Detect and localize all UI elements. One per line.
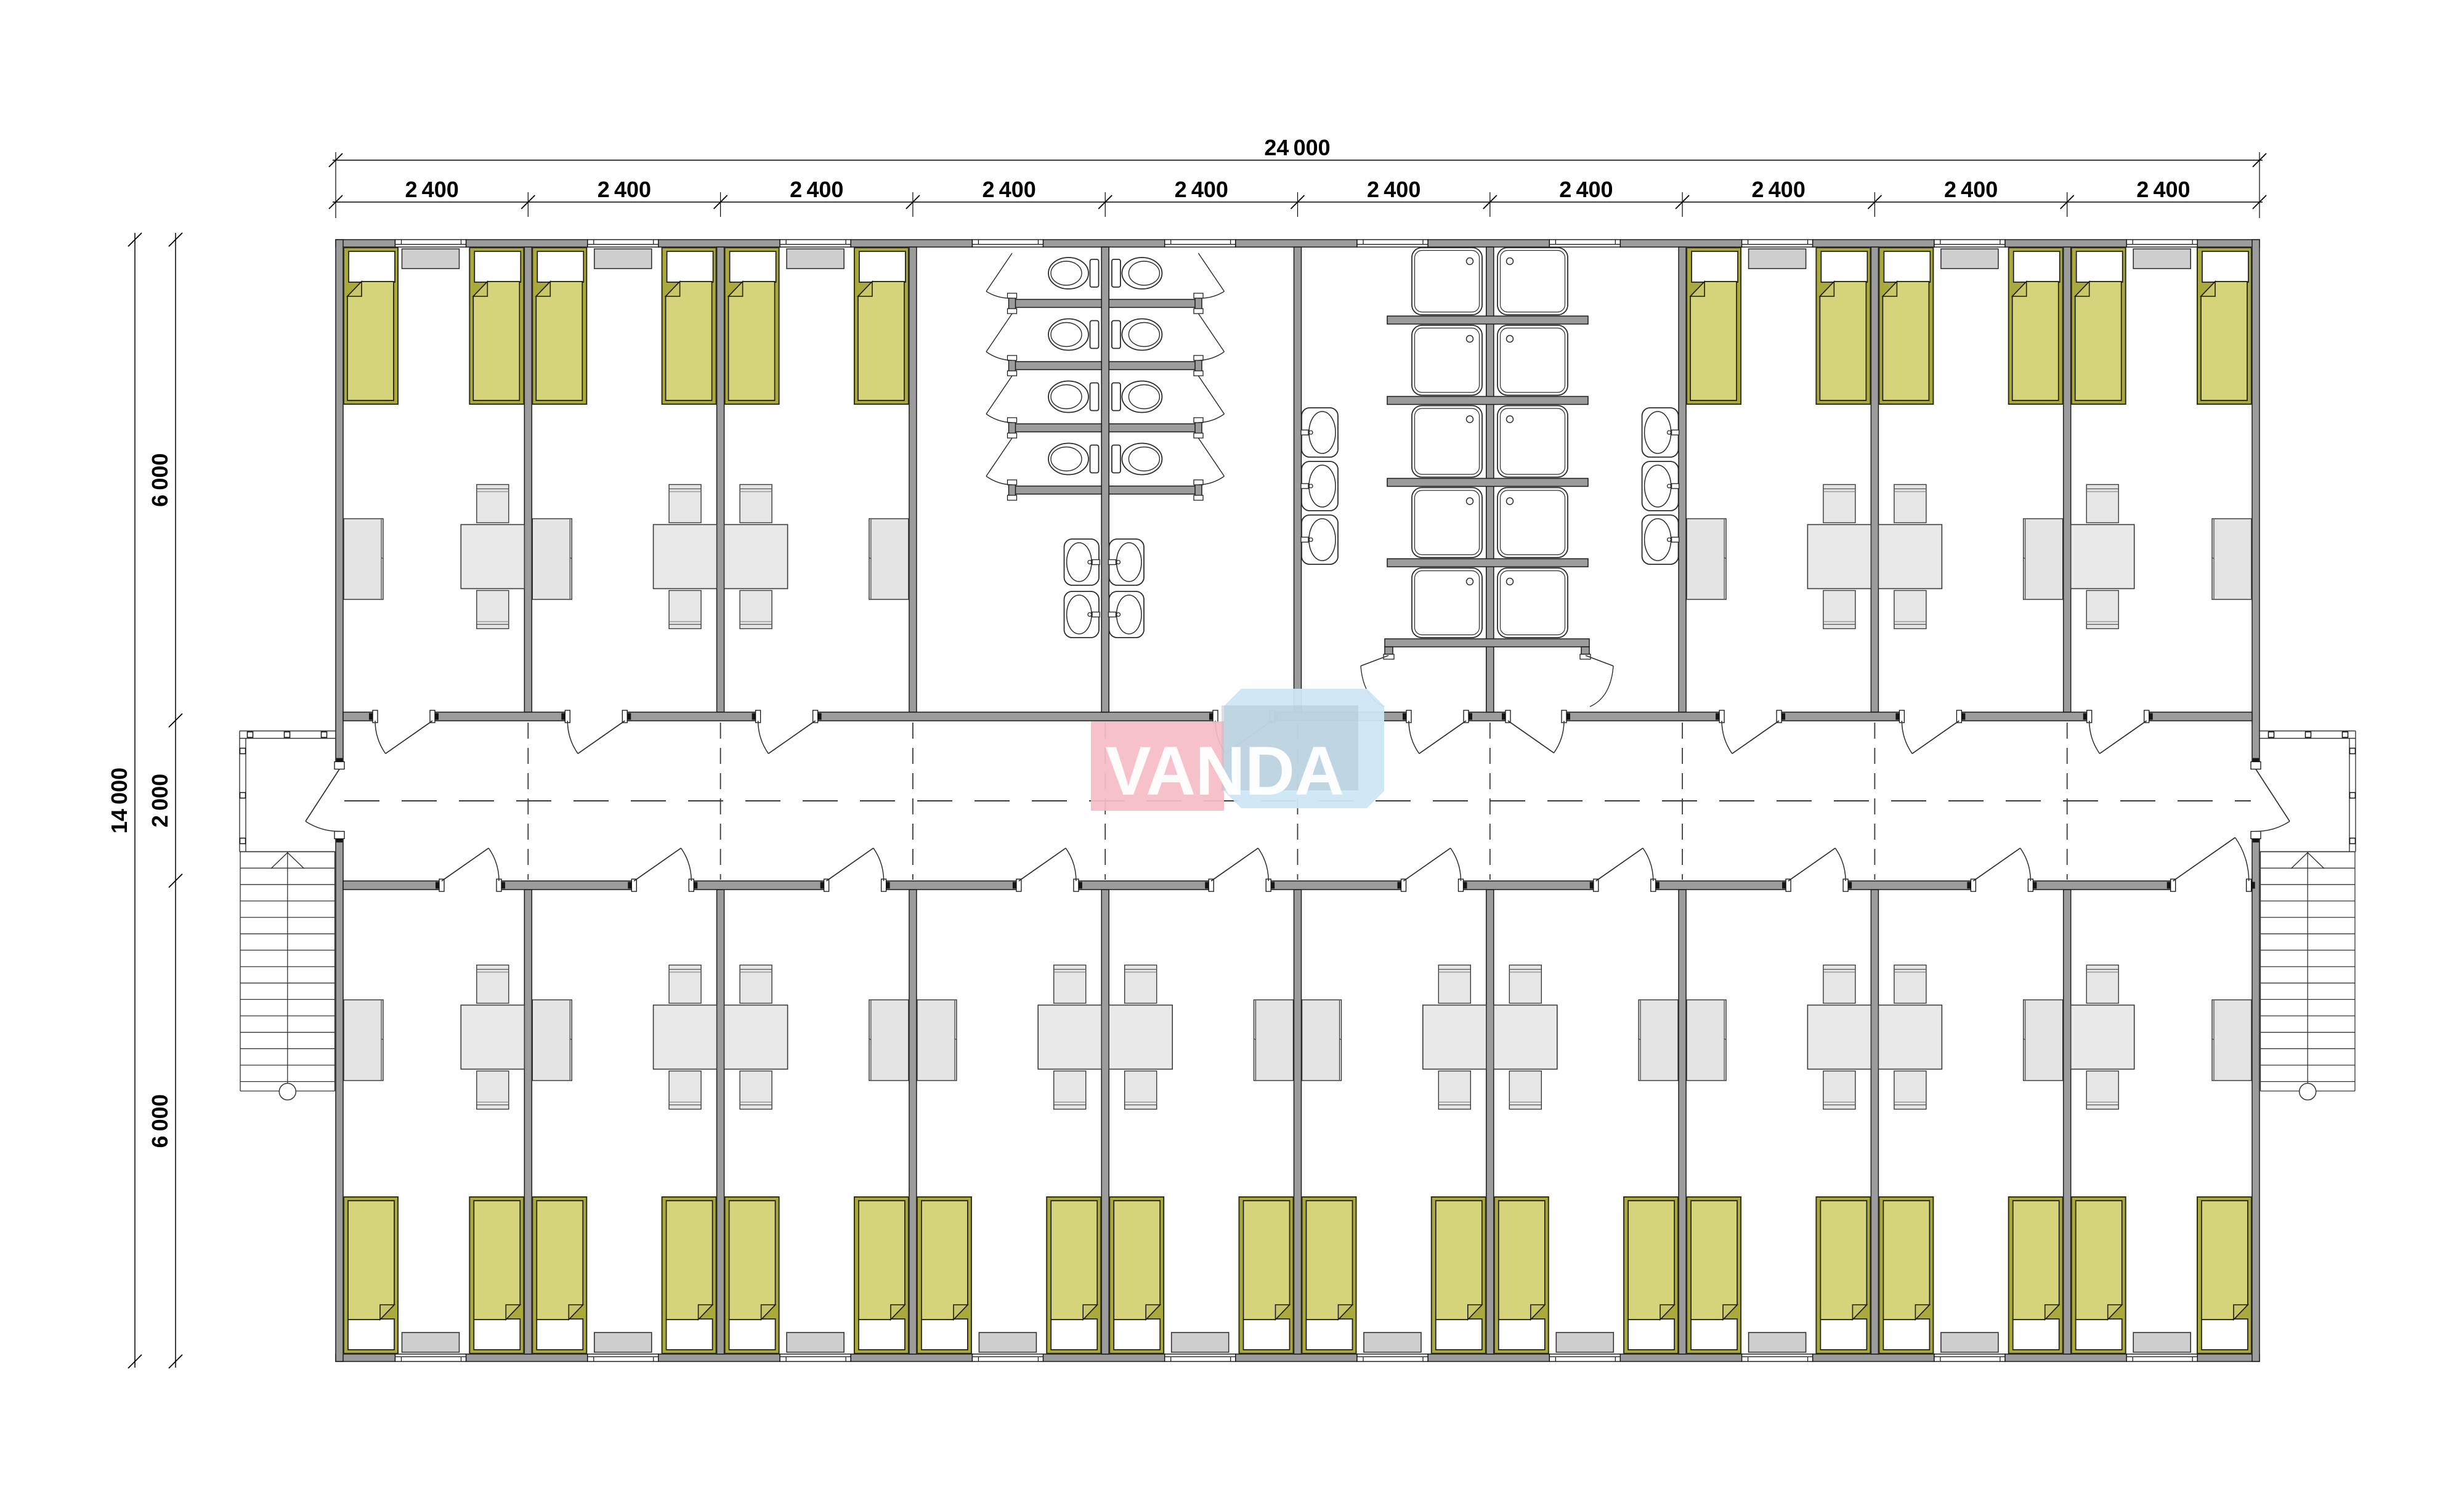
svg-text:2 400: 2 400 (1559, 177, 1613, 202)
svg-text:2 400: 2 400 (982, 177, 1035, 202)
svg-text:2 400: 2 400 (1175, 177, 1228, 202)
svg-text:6 000: 6 000 (147, 1094, 172, 1148)
svg-text:2 400: 2 400 (405, 177, 458, 202)
svg-text:24 000: 24 000 (1264, 135, 1330, 160)
svg-text:VANDA: VANDA (1105, 732, 1343, 809)
svg-text:14 000: 14 000 (107, 768, 132, 834)
svg-text:2 400: 2 400 (1367, 177, 1420, 202)
svg-text:6 000: 6 000 (147, 453, 172, 507)
svg-text:2 400: 2 400 (1944, 177, 1998, 202)
svg-text:2 400: 2 400 (790, 177, 843, 202)
svg-text:2 400: 2 400 (1752, 177, 1805, 202)
svg-text:2 400: 2 400 (598, 177, 651, 202)
svg-text:2 000: 2 000 (147, 774, 172, 827)
svg-text:2 400: 2 400 (2136, 177, 2190, 202)
